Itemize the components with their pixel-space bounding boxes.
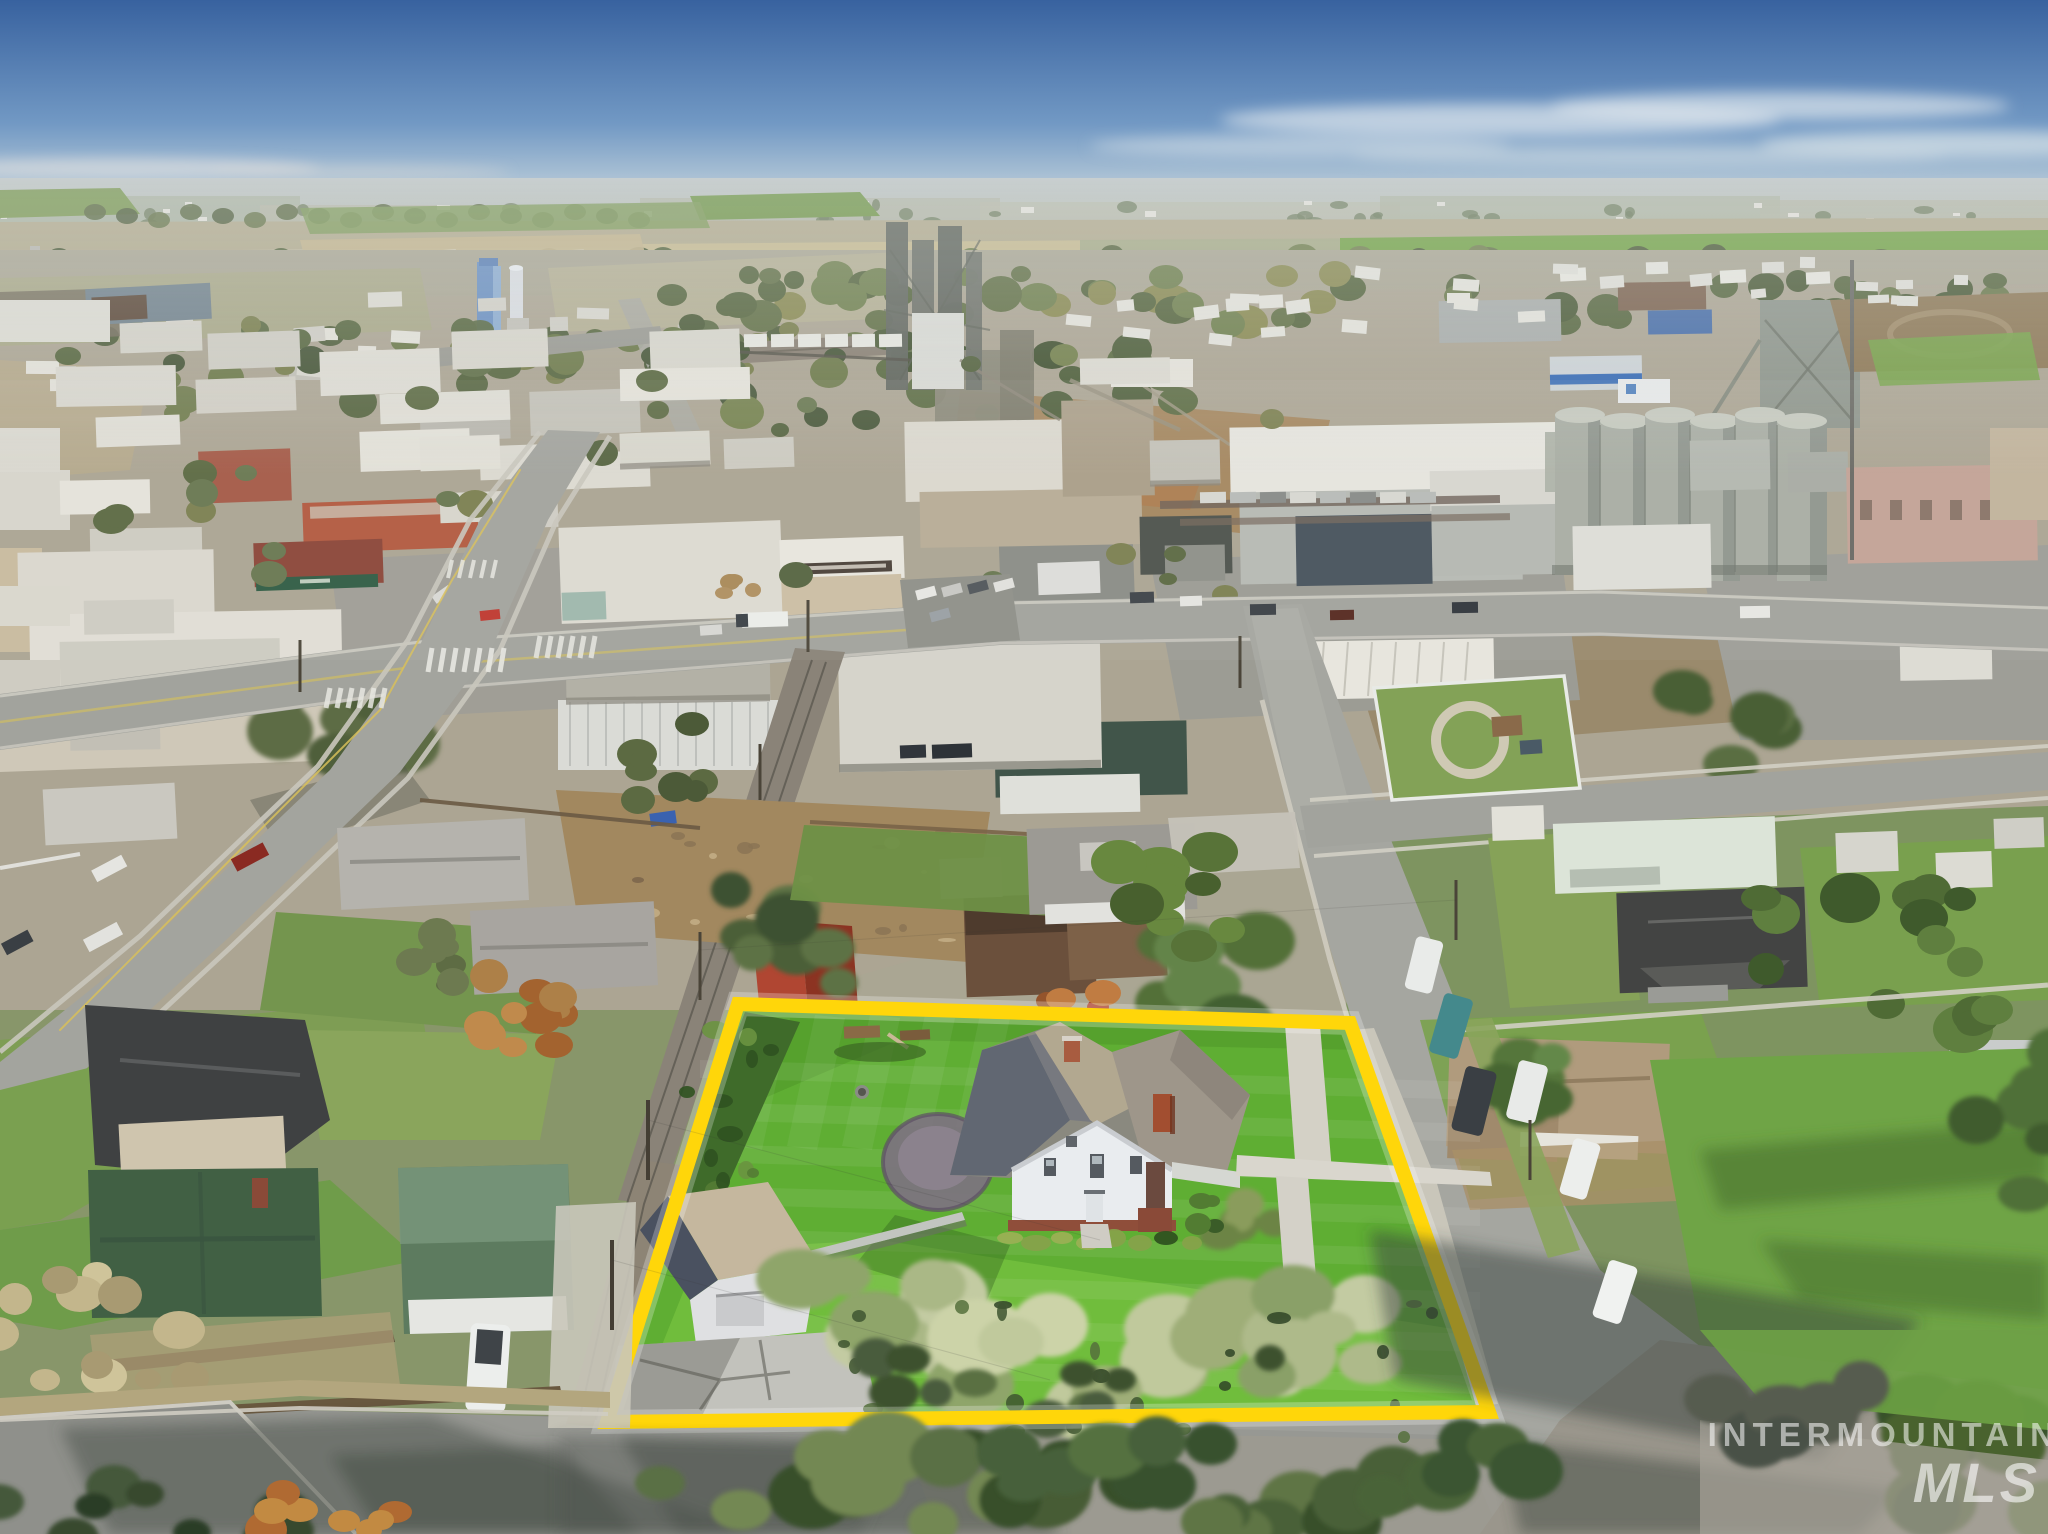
svg-text:MLS: MLS (1913, 1451, 2040, 1514)
svg-text:INTERMOUNTAIN: INTERMOUNTAIN (1708, 1416, 2048, 1453)
